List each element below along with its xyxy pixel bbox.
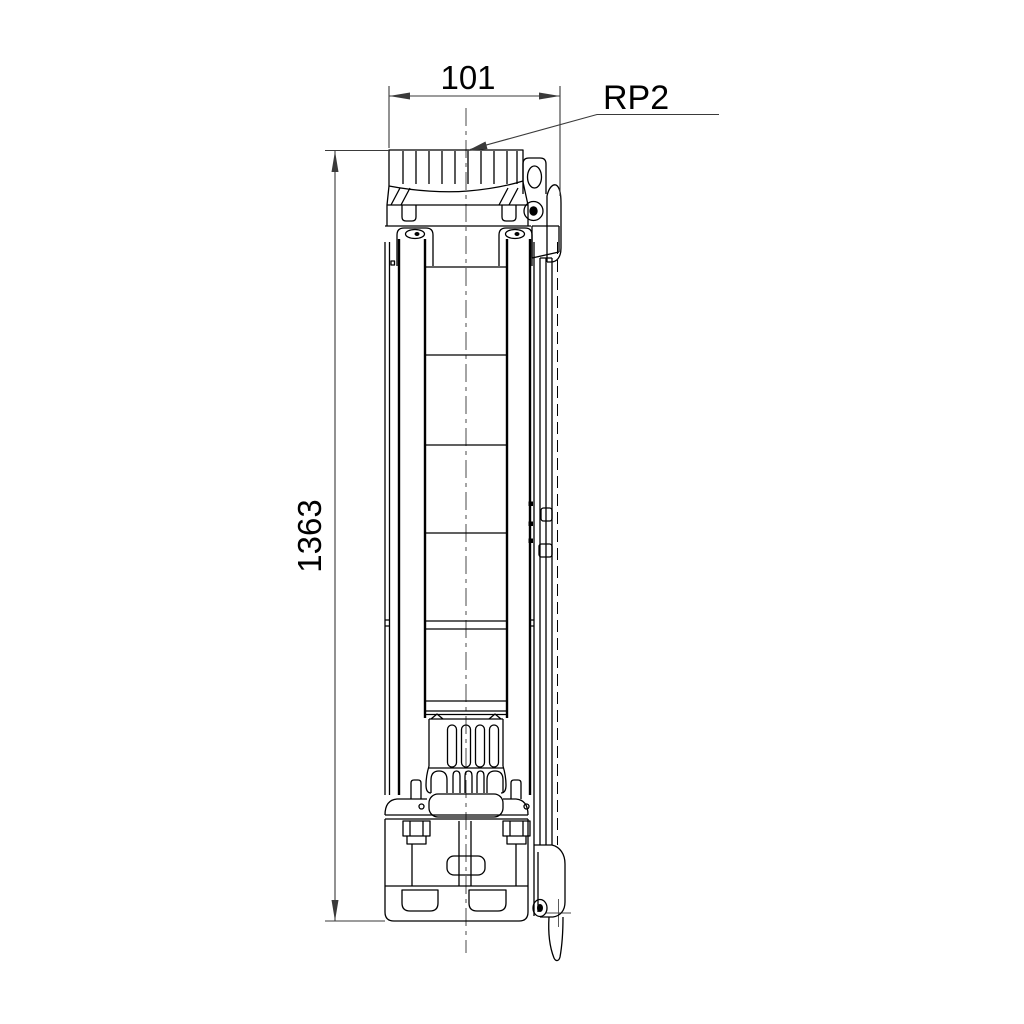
strap-hooks [397,228,532,266]
motor-flange [385,799,528,819]
motor [385,780,530,921]
pump-outline [385,150,565,961]
bracket-centerline-cross [546,899,571,927]
inlet-slot [476,725,485,767]
strap-screw [419,804,424,809]
height-dimension: 1363 [291,151,389,922]
chamber-stack [399,239,530,795]
sleeve-lines [385,242,534,845]
casing-lugs [402,205,516,221]
width-dimension-value: 101 [440,59,495,96]
suction-strainer [419,714,529,817]
guard-head [532,226,559,258]
right-hook-pin [515,232,520,236]
thread-outline [389,150,523,186]
thread-callout: RP2 [467,79,719,151]
base-notches [402,890,506,911]
inlet-slot [448,725,457,767]
pump-technical-drawing: 101 1363 RP2 [0,0,1024,1024]
width-dimension: 101 [389,59,560,196]
bracket-screw [537,904,543,912]
discharge-head [385,150,531,226]
dim-arrow-left-icon [389,93,410,100]
height-dimension-value: 1363 [291,499,328,572]
casing-ribs [391,188,518,205]
width-dim-lines [389,86,560,196]
guard-tail [549,917,563,961]
guard-channel [540,258,552,845]
guard-screw [529,206,537,216]
dim-arrow-right-icon [539,93,560,100]
dim-arrow-up-icon [332,151,339,172]
inlet-slot [490,725,499,767]
weep-hole [391,261,395,265]
guard-top-slot [528,166,542,188]
thread-crests [403,151,517,184]
pump-sleeve [385,242,534,845]
motor-body-lines [385,819,528,886]
dim-arrow-down-icon [332,900,339,921]
height-dim-lines [325,151,389,922]
lower-inlet-arches [431,771,503,793]
leader-line [470,115,719,150]
thread-size-label: RP2 [603,79,669,117]
left-hook-pin [415,232,420,236]
